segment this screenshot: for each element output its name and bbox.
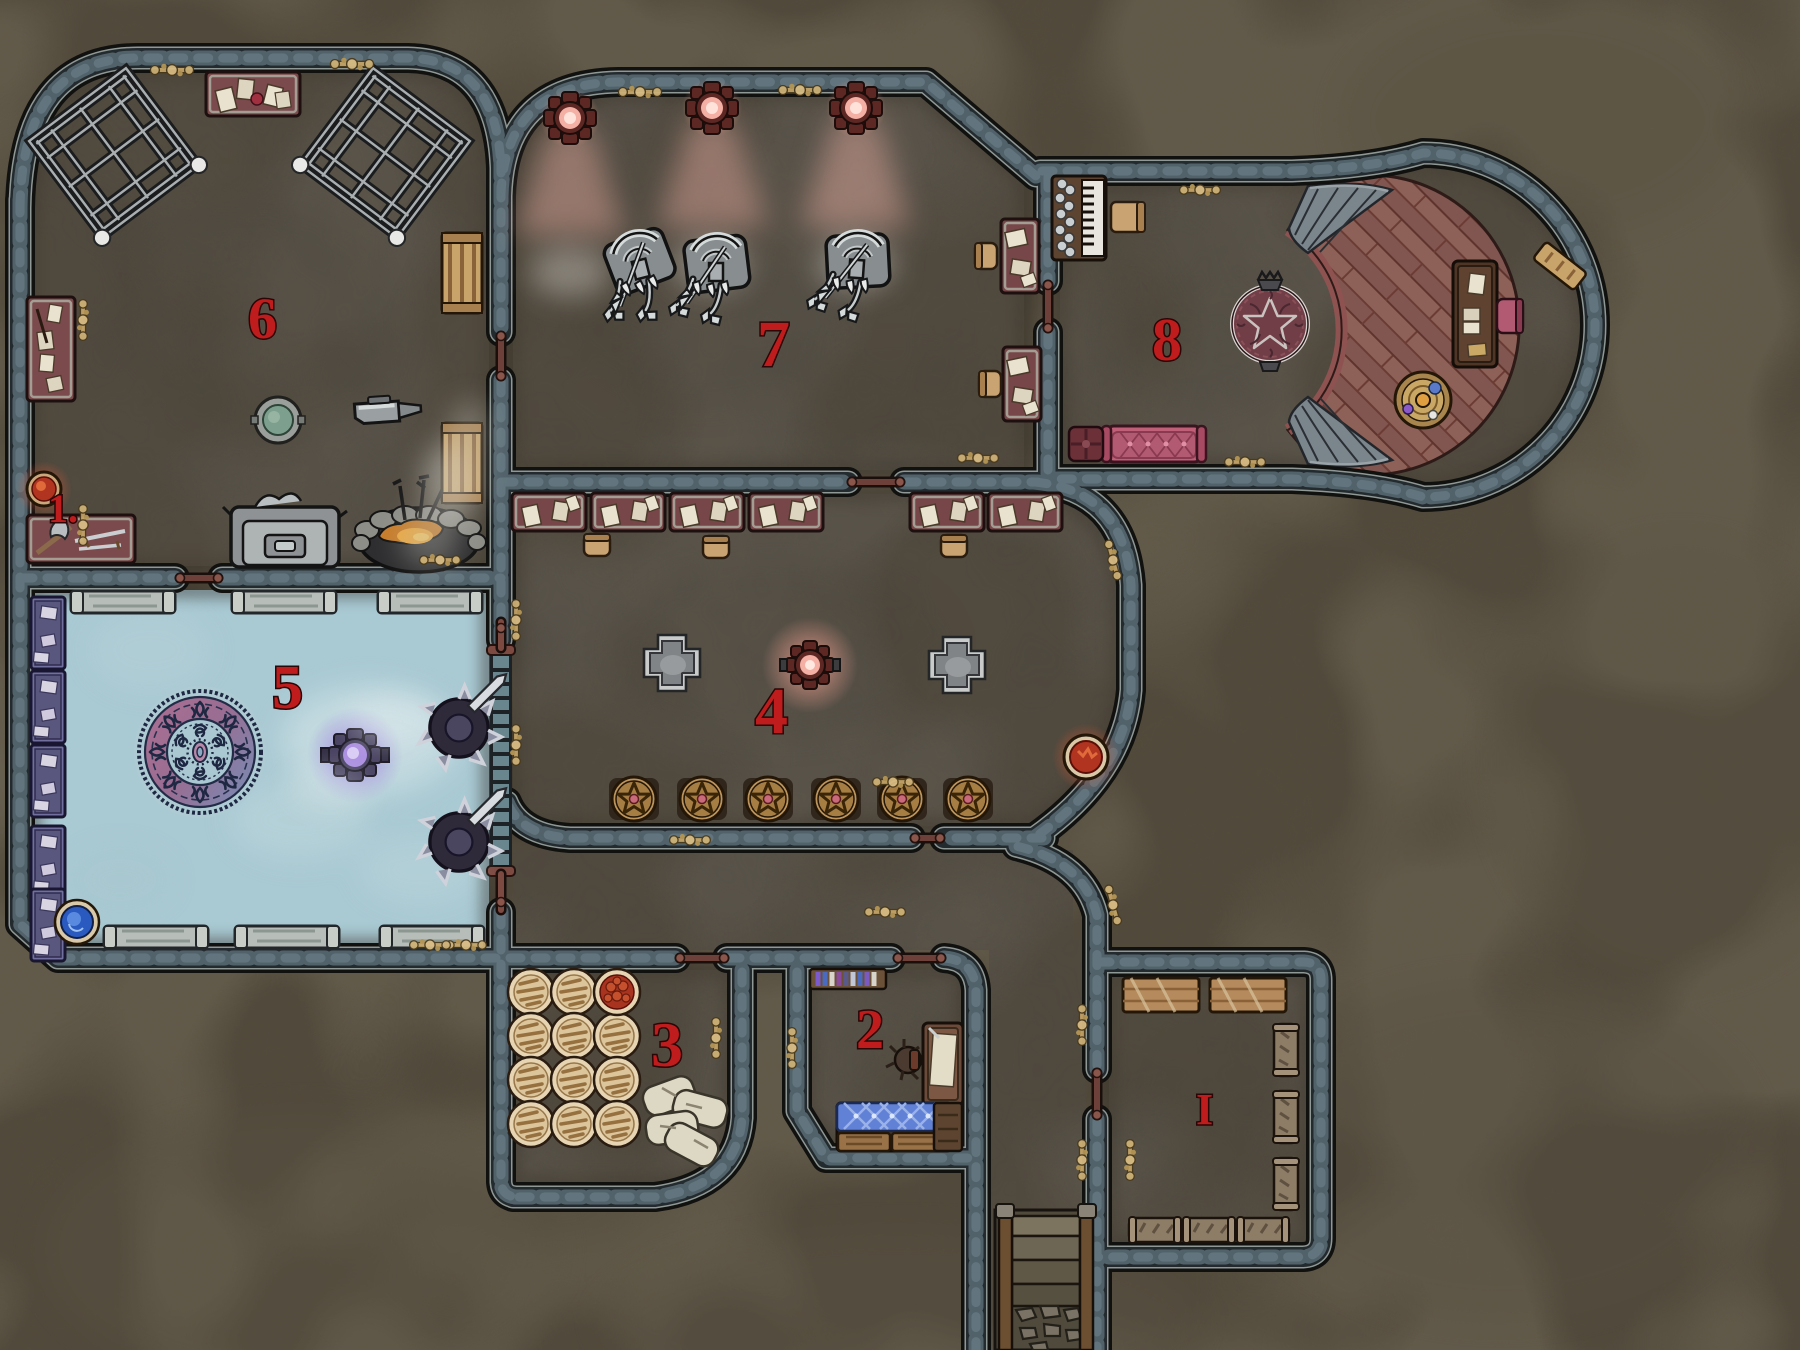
svg-text:I: I — [1196, 1085, 1213, 1134]
svg-text:2: 2 — [856, 999, 884, 1061]
svg-text:4: 4 — [755, 675, 788, 748]
svg-text:1.: 1. — [48, 486, 78, 531]
svg-text:6: 6 — [248, 286, 277, 351]
svg-text:3: 3 — [651, 1009, 683, 1080]
svg-text:5: 5 — [272, 654, 303, 722]
svg-text:7: 7 — [757, 308, 790, 381]
svg-text:8: 8 — [1152, 307, 1182, 373]
